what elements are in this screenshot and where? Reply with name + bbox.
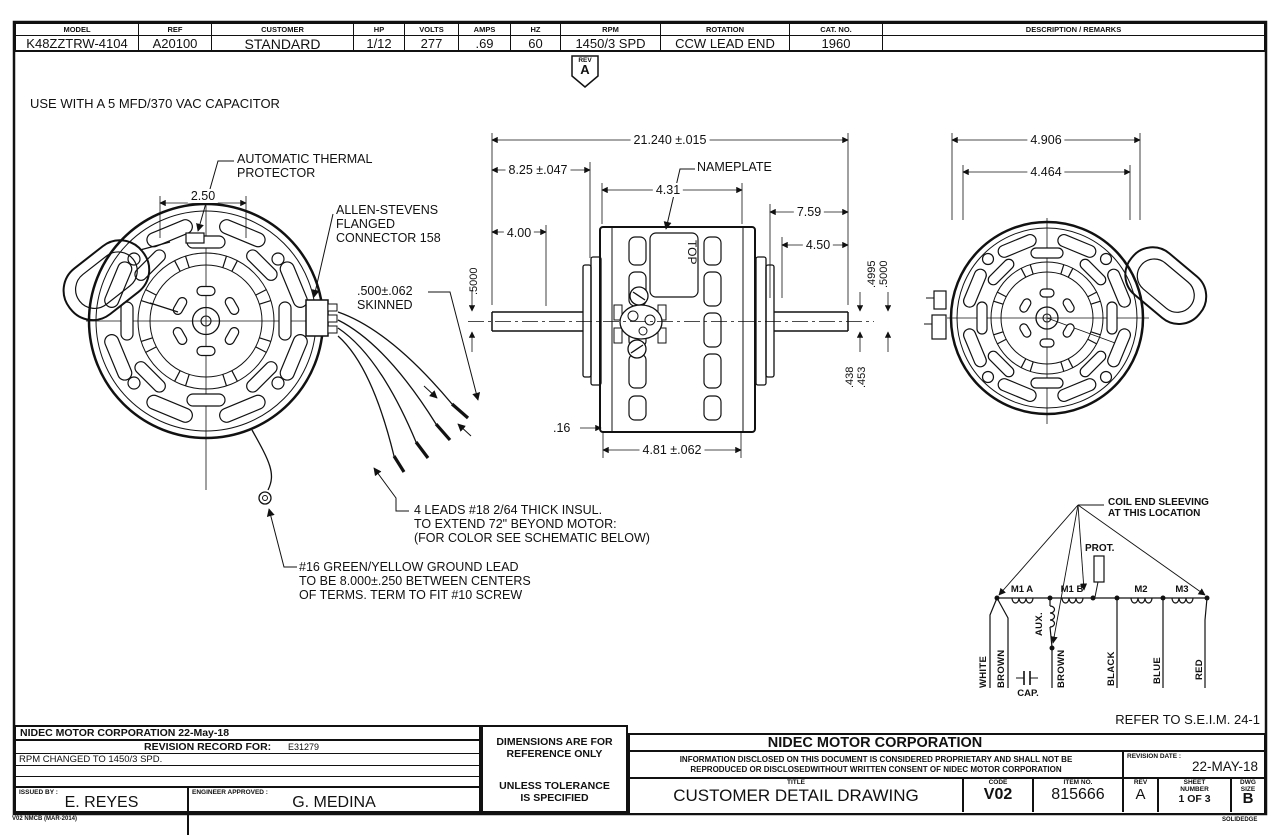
title-label: TITLE (630, 779, 962, 786)
spec-col-rpm: RPM 1450/3 SPD (561, 24, 661, 50)
spec-col-model: MODEL K48ZZTRW-4104 (16, 24, 139, 50)
thermal-protector-note: AUTOMATIC THERMAL PROTECTOR (237, 152, 372, 180)
title-block: NIDEC MOTOR CORPORATION INFORMATION DISC… (628, 733, 1266, 815)
ground-note: #16 GREEN/YELLOW GROUND LEAD TO BE 8.000… (299, 560, 531, 602)
revision-date-cell: REVISION DATE : 22-MAY-18 (1124, 752, 1264, 777)
cad-system-note: SOLIDEDGE (1222, 817, 1257, 824)
ref-value: A20100 (139, 36, 211, 50)
dim-4-31: 4.31 (653, 183, 683, 197)
item-no-cell: ITEM NO. 815666 (1034, 779, 1124, 812)
hp-value: 1/12 (354, 36, 404, 50)
protector-symbol (1094, 556, 1104, 582)
dim-5000-left: .5000 (468, 267, 480, 295)
dim-7-59: 7.59 (794, 205, 824, 219)
model-value: K48ZZTRW-4104 (16, 36, 138, 50)
spec-col-description: DESCRIPTION / REMARKS (883, 24, 1264, 50)
dim-4995: .4995 (866, 260, 878, 288)
reference-note: DIMENSIONS ARE FOR REFERENCE ONLY (483, 736, 626, 760)
motor-leads (338, 312, 452, 456)
item-no-label: ITEM NO. (1034, 779, 1122, 786)
wiring-schematic (990, 556, 1208, 688)
rev-label: REV (1124, 779, 1157, 786)
tolerance-note: UNLESS TOLERANCE IS SPECIFIED (483, 780, 626, 804)
dim-453: .453 (856, 367, 868, 388)
code-value: V02 (964, 786, 1032, 804)
spec-table: MODEL K48ZZTRW-4104 REF A20100 CUSTOMER … (14, 22, 1266, 52)
thermal-protector-shape (186, 233, 204, 243)
customer-header: CUSTOMER (212, 24, 353, 36)
right-handle-loop (1115, 237, 1217, 335)
description-header: DESCRIPTION / REMARKS (883, 24, 1264, 36)
rev-value: A (1124, 786, 1157, 803)
lead-connector-shape (306, 300, 337, 336)
proprietary-note: INFORMATION DISCLOSED ON THIS DOCUMENT I… (630, 752, 1124, 777)
top-label: TOP (685, 240, 699, 264)
engineer-cell: ENGINEER APPROVED : G. MEDINA (189, 788, 479, 835)
wire-white-label: WHITE (978, 656, 989, 688)
revision-record-label: REVISION RECORD FOR: (144, 741, 271, 753)
revision-date-value: 22-MAY-18 (1124, 759, 1264, 774)
revision-empty-row-1 (16, 766, 479, 777)
spec-col-rotation: ROTATION CCW LEAD END (661, 24, 790, 50)
wire-brown2-label: BROWN (1056, 650, 1067, 688)
coil-m2-label: M2 (1130, 584, 1152, 595)
dim-2-50: 2.50 (188, 189, 218, 203)
engineer-value: G. MEDINA (189, 794, 479, 812)
ground-lead-wire (252, 430, 271, 490)
volts-header: VOLTS (405, 24, 458, 36)
dim-21-240: 21.240 ±.015 (631, 133, 710, 147)
dim-5000-right: .5000 (878, 260, 890, 288)
dwg-size-cell: DWG SIZE B (1232, 779, 1264, 812)
rpm-value: 1450/3 SPD (561, 36, 660, 50)
issued-by-cell: ISSUED BY : E. REYES (16, 788, 189, 835)
signature-row: ISSUED BY : E. REYES ENGINEER APPROVED :… (16, 788, 479, 835)
title-block-company: NIDEC MOTOR CORPORATION (630, 735, 1264, 752)
sheet-label: SHEET NUMBER (1159, 779, 1230, 793)
rev-cell: REV A (1124, 779, 1159, 812)
connector-note: ALLEN-STEVENS FLANGED CONNECTOR 158 (336, 203, 441, 245)
coil-m1b-label: M1 B (1059, 584, 1085, 595)
code-label: CODE (964, 779, 1032, 786)
drawing-title: CUSTOMER DETAIL DRAWING (630, 786, 962, 806)
dim-4-00: 4.00 (504, 226, 534, 240)
nameplate-label: NAMEPLATE (697, 160, 772, 174)
form-code: V02 NMCB (MAR-2014) (12, 816, 77, 823)
volts-value: 277 (405, 36, 458, 50)
description-value (883, 36, 1264, 50)
amps-value: .69 (459, 36, 510, 50)
mounting-clamp-shape (614, 287, 666, 358)
title-row: TITLE CUSTOMER DETAIL DRAWING CODE V02 I… (630, 779, 1264, 835)
spec-col-hp: HP 1/12 (354, 24, 405, 50)
spec-col-volts: VOLTS 277 (405, 24, 459, 50)
revision-company-line: NIDEC MOTOR CORPORATION 22-May-18 (16, 727, 479, 741)
ref-header: REF (139, 24, 211, 36)
hz-value: 60 (511, 36, 560, 50)
issued-by-value: E. REYES (16, 794, 187, 812)
dim-8-25: 8.25 ±.047 (506, 163, 571, 177)
code-cell: CODE V02 (964, 779, 1034, 812)
cat-no-header: CAT. NO. (790, 24, 882, 36)
title-cell: TITLE CUSTOMER DETAIL DRAWING (630, 779, 964, 812)
hp-header: HP (354, 24, 404, 36)
sheet-cell: SHEET NUMBER 1 OF 3 (1159, 779, 1232, 812)
customer-value: STANDARD (212, 36, 353, 50)
rpm-header: RPM (561, 24, 660, 36)
revision-record-number: E31279 (288, 742, 319, 753)
item-no-value: 815666 (1034, 786, 1122, 804)
aux-label: AUX. (1034, 612, 1045, 636)
hz-header: HZ (511, 24, 560, 36)
dim-16: .16 (551, 421, 572, 435)
skinned-lead-tips (394, 404, 468, 472)
wire-red-label: RED (1194, 659, 1205, 680)
rotation-header: ROTATION (661, 24, 789, 36)
dim-4-50: 4.50 (803, 238, 833, 252)
dim-438: .438 (844, 367, 856, 388)
sleeving-note: COIL END SLEEVING AT THIS LOCATION (1108, 497, 1209, 519)
drawing-linework (0, 0, 1280, 835)
dwg-size-value: B (1232, 790, 1264, 807)
dim-4-464: 4.464 (1027, 165, 1064, 179)
wire-brown1-label: BROWN (996, 650, 1007, 688)
spec-col-amps: AMPS .69 (459, 24, 511, 50)
dimensions-note-block: DIMENSIONS ARE FOR REFERENCE ONLY UNLESS… (481, 725, 628, 813)
spec-col-customer: CUSTOMER STANDARD (212, 24, 354, 50)
prot-label: PROT. (1085, 543, 1114, 554)
wire-blue-label: BLUE (1152, 657, 1163, 684)
dim-4-81: 4.81 ±.062 (640, 443, 705, 457)
skinned-note: .500±.062 SKINNED (357, 284, 413, 312)
spec-col-cat-no: CAT. NO. 1960 (790, 24, 883, 50)
revision-record-for-row: REVISION RECORD FOR: E31279 (16, 741, 479, 754)
cap-label: CAP. (1015, 688, 1041, 699)
refer-note: REFER TO S.E.I.M. 24-1 (1050, 713, 1260, 728)
model-header: MODEL (16, 24, 138, 36)
wire-black-label: BLACK (1106, 651, 1117, 686)
coil-m3-label: M3 (1171, 584, 1193, 595)
spec-col-hz: HZ 60 (511, 24, 561, 50)
revision-record-block: NIDEC MOTOR CORPORATION 22-May-18 REVISI… (14, 725, 481, 813)
capacitor-note: USE WITH A 5 MFD/370 VAC CAPACITOR (30, 97, 280, 112)
leads-note: 4 LEADS #18 2/64 THICK INSUL. TO EXTEND … (414, 503, 650, 545)
rotation-value: CCW LEAD END (661, 36, 789, 50)
cat-no-value: 1960 (790, 36, 882, 50)
revision-change-row: RPM CHANGED TO 1450/3 SPD. (16, 754, 479, 766)
coil-m1a-label: M1 A (1009, 584, 1035, 595)
revision-empty-row-2 (16, 777, 479, 788)
proprietary-row: INFORMATION DISCLOSED ON THIS DOCUMENT I… (630, 752, 1264, 779)
left-handle-loop (52, 229, 160, 331)
spec-col-ref: REF A20100 (139, 24, 212, 50)
amps-header: AMPS (459, 24, 510, 36)
drawing-sheet: MODEL K48ZZTRW-4104 REF A20100 CUSTOMER … (0, 0, 1280, 835)
sheet-value: 1 OF 3 (1159, 793, 1230, 805)
rev-flag-value: A (572, 63, 598, 78)
dim-4-906: 4.906 (1027, 133, 1064, 147)
